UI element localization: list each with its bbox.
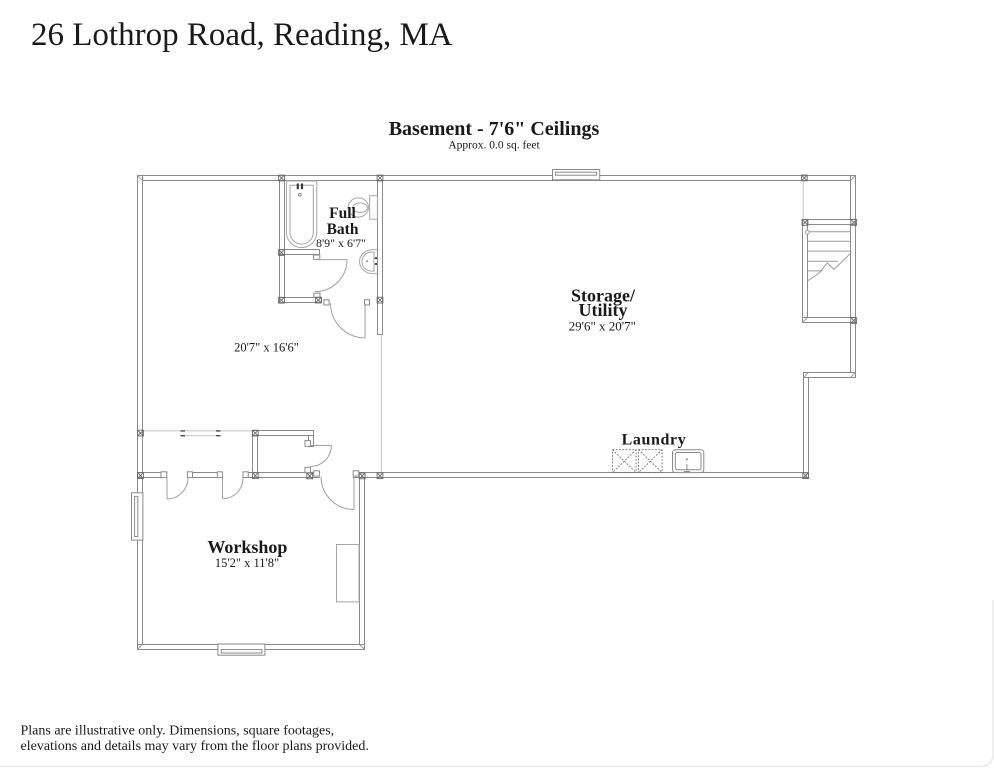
svg-text:Utility: Utility — [579, 300, 628, 320]
svg-text:8'9" x 6'7": 8'9" x 6'7" — [316, 236, 366, 250]
svg-text:Approx. 0.0 sq. feet: Approx. 0.0 sq. feet — [448, 140, 540, 152]
svg-text:Workshop: Workshop — [207, 537, 287, 557]
svg-text:Basement - 7'6" Ceilings: Basement - 7'6" Ceilings — [389, 118, 600, 140]
svg-text:Laundry: Laundry — [622, 431, 687, 448]
svg-text:29'6" x 20'7": 29'6" x 20'7" — [569, 319, 636, 334]
svg-text:15'2" x 11'8": 15'2" x 11'8" — [215, 556, 279, 570]
svg-text:20'7" x 16'6": 20'7" x 16'6" — [234, 341, 299, 355]
svg-text:elevations and details may var: elevations and details may vary from the… — [21, 739, 369, 754]
svg-text:26 Lothrop Road, Reading, MA: 26 Lothrop Road, Reading, MA — [31, 17, 453, 53]
svg-text:Plans are illustrative only. D: Plans are illustrative only. Dimensions,… — [21, 723, 335, 738]
svg-text:Full: Full — [329, 205, 356, 222]
